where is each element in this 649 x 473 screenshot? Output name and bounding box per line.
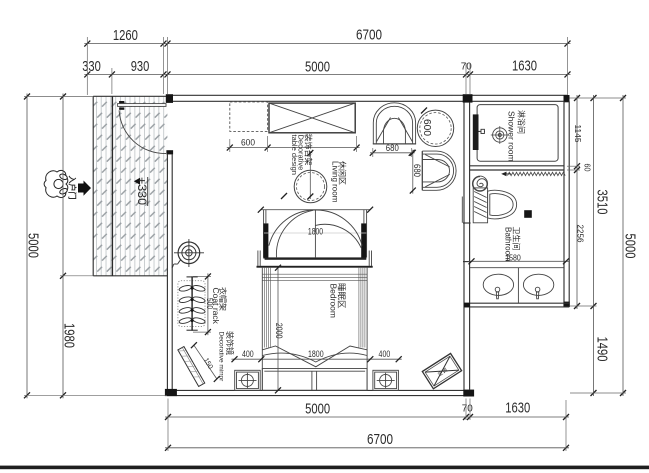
svg-text:2256: 2256 [575,225,584,244]
svg-text:Bedroom: Bedroom [329,284,339,319]
svg-text:+330: +330 [135,177,147,205]
svg-text:1630: 1630 [512,58,537,75]
svg-text:6700: 6700 [356,26,382,43]
svg-text:Living room: Living room [331,161,340,203]
svg-text:table design: table design [290,135,299,175]
svg-text:400: 400 [242,349,254,359]
svg-text:70: 70 [462,403,473,415]
svg-text:330: 330 [82,58,101,75]
svg-text:680: 680 [412,164,422,177]
svg-text:1800: 1800 [308,349,324,359]
svg-text:入户门: 入户门 [68,175,78,200]
svg-text:1145: 1145 [573,125,582,144]
svg-text:680: 680 [386,143,399,153]
svg-text:6700: 6700 [367,431,393,448]
svg-text:1630: 1630 [505,399,530,416]
svg-text:60: 60 [583,164,592,172]
svg-text:3510: 3510 [594,190,611,215]
svg-text:400: 400 [379,349,391,359]
svg-text:Shower room: Shower room [507,111,517,162]
svg-text:1580: 1580 [505,252,521,262]
svg-text:600: 600 [421,119,432,136]
svg-text:5000: 5000 [622,234,639,259]
svg-text:装饰镜: 装饰镜 [225,331,235,355]
svg-text:5000: 5000 [25,233,42,258]
svg-text:600: 600 [241,138,255,148]
svg-text:930: 930 [131,58,150,75]
svg-text:5000: 5000 [305,401,330,418]
svg-text:淋浴间: 淋浴间 [517,110,527,134]
svg-text:1800: 1800 [308,226,323,236]
svg-text:1490: 1490 [594,337,611,362]
svg-text:Decorative mirror: Decorative mirror [218,332,225,383]
svg-text:Coat rack: Coat rack [211,288,221,325]
svg-text:1980: 1980 [61,323,78,348]
svg-text:2000: 2000 [274,323,284,339]
svg-text:5000: 5000 [305,59,330,76]
svg-text:1260: 1260 [113,27,138,44]
